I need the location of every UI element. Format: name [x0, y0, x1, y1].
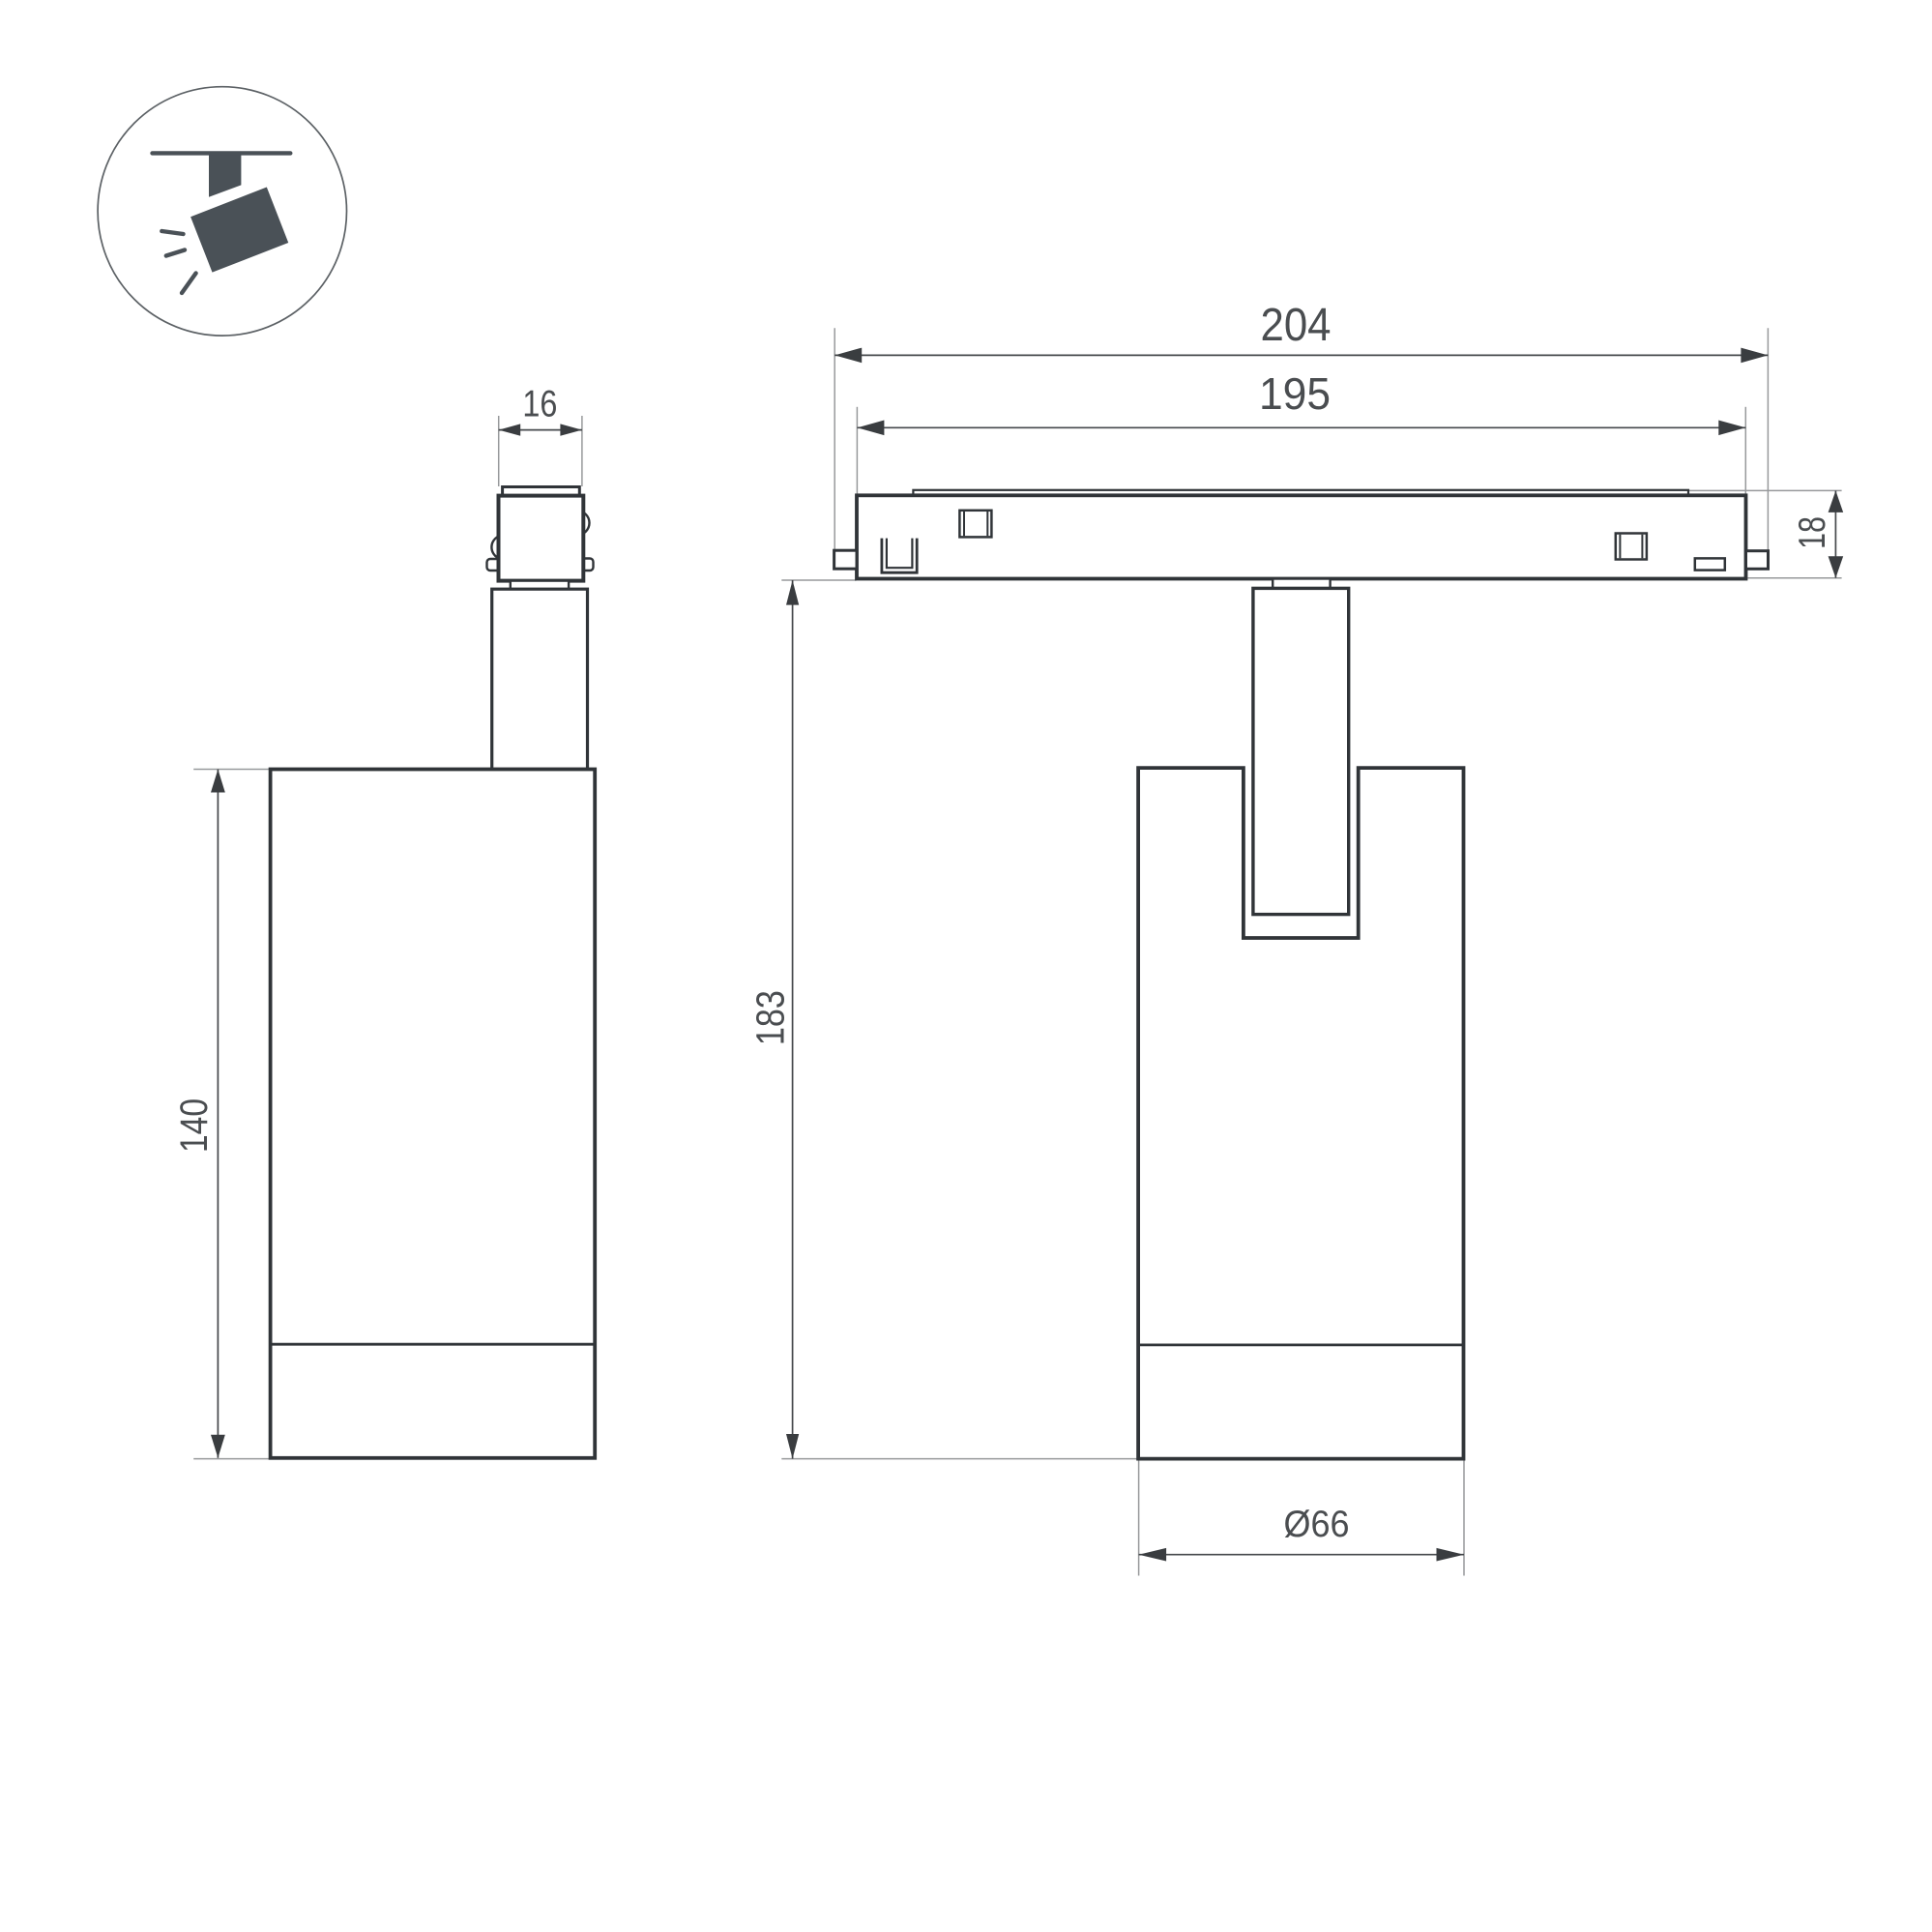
svg-text:Ø66: Ø66 — [1284, 1504, 1350, 1545]
svg-text:140: 140 — [173, 1098, 216, 1153]
svg-text:204: 204 — [1261, 300, 1332, 351]
svg-text:183: 183 — [748, 990, 793, 1045]
svg-text:195: 195 — [1259, 368, 1331, 419]
svg-text:18: 18 — [1792, 516, 1833, 549]
svg-text:16: 16 — [522, 384, 557, 425]
